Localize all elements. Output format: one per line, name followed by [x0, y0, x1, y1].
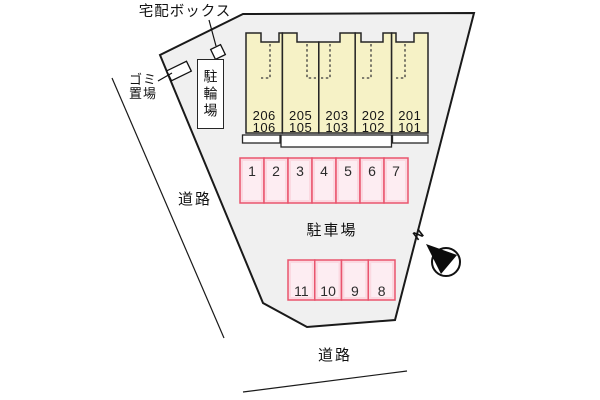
parking-number-6: 6	[368, 163, 376, 179]
road-edge-bottom	[243, 371, 407, 392]
balcony-strip-middle	[281, 135, 392, 147]
road-label-left: 道路	[178, 191, 212, 208]
parking-number-3: 3	[296, 163, 304, 179]
unit-label-103: 103	[325, 120, 348, 135]
site-plan-canvas: 206 106 205 105 203 103 202 102 201 101	[0, 0, 600, 400]
parking-row-2: 11 10 9 8	[288, 260, 395, 300]
north-arrow-icon: N	[410, 226, 460, 276]
parking-number-8: 8	[378, 283, 386, 299]
unit-label-106: 106	[253, 120, 276, 135]
parking-number-5: 5	[344, 163, 352, 179]
site-plan: 206 106 205 105 203 103 202 102 201 101	[0, 0, 600, 400]
parking-row-1: 1 2 3 4 5 6 7	[240, 158, 408, 203]
building: 206 106 205 105 203 103 202 102 201 101	[243, 33, 429, 147]
bicycle-parking-label: 駐輪場	[201, 69, 221, 120]
parking-number-11: 11	[294, 283, 309, 299]
parking-number-7: 7	[392, 163, 400, 179]
garbage-area-label-line1: ゴミ	[129, 72, 157, 87]
unit-label-102: 102	[362, 120, 385, 135]
parking-number-10: 10	[320, 283, 336, 299]
parking-number-4: 4	[320, 163, 328, 179]
garbage-area-label-line2: 置場	[129, 86, 157, 101]
bicycle-parking-box: 駐輪場	[197, 59, 224, 129]
balcony-strip-left	[243, 135, 281, 143]
parking-lot-label: 駐車場	[306, 222, 357, 239]
delivery-box-label: 宅配ボックス	[139, 3, 232, 20]
balcony-strip-right	[393, 135, 429, 143]
unit-label-101: 101	[398, 120, 421, 135]
parking-number-9: 9	[351, 283, 359, 299]
unit-label-105: 105	[289, 120, 312, 135]
parking-number-1: 1	[248, 163, 256, 179]
parking-number-2: 2	[272, 163, 280, 179]
road-label-bottom: 道路	[318, 347, 352, 364]
